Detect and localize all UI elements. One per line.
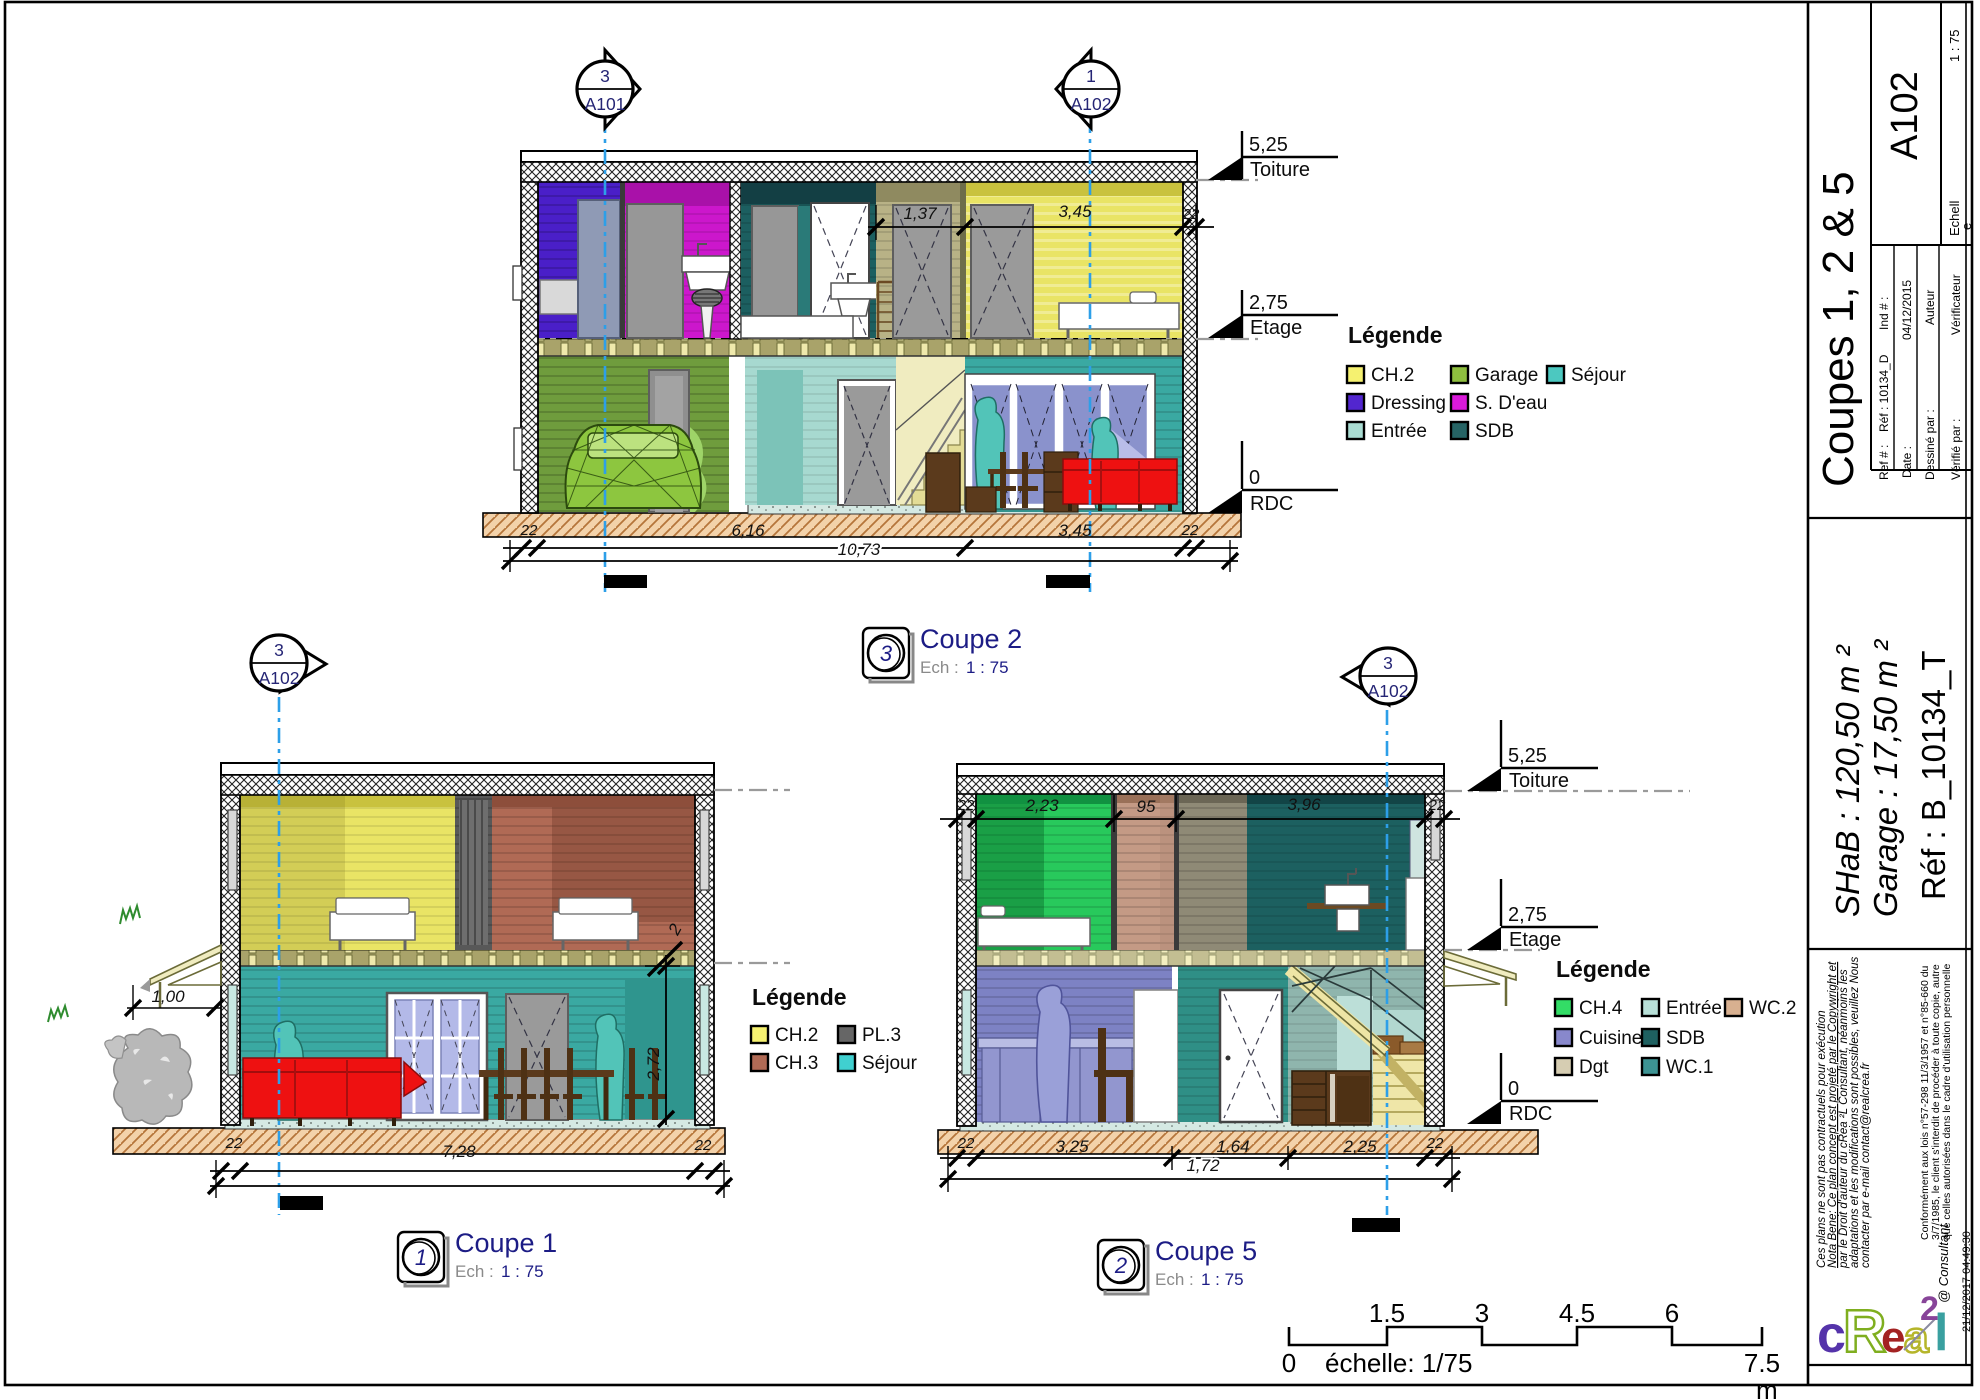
svg-text:PL.3: PL.3 (862, 1025, 901, 1046)
svg-text:6: 6 (1665, 1298, 1679, 1328)
svg-text:4.5: 4.5 (1559, 1298, 1595, 1328)
svg-text:l: l (1934, 1304, 1948, 1362)
svg-text:Date :: Date : (1900, 446, 1914, 478)
svg-text:Séjour: Séjour (1571, 365, 1627, 386)
svg-text:CH.3: CH.3 (775, 1053, 818, 1074)
svg-text:3,45: 3,45 (1058, 202, 1092, 221)
svg-text:1 : 75: 1 : 75 (1201, 1270, 1244, 1289)
svg-text:CH.4: CH.4 (1579, 998, 1623, 1019)
svg-text:3,45: 3,45 (1058, 521, 1092, 540)
svg-text:Ind # :: Ind # : (1877, 297, 1891, 330)
svg-text:22: 22 (1182, 206, 1200, 223)
svg-text:7.5: 7.5 (1744, 1348, 1780, 1378)
svg-text:Ech :: Ech : (920, 658, 959, 677)
svg-text:1,72: 1,72 (1186, 1156, 1220, 1175)
svg-text:1,00: 1,00 (151, 987, 185, 1006)
svg-text:3,96: 3,96 (1287, 795, 1321, 814)
svg-text:S. D'eau: S. D'eau (1475, 393, 1547, 414)
svg-text:0: 0 (1508, 1078, 1519, 1100)
svg-text:échelle: 1/75: échelle: 1/75 (1325, 1348, 1472, 1378)
svg-text:Ech :: Ech : (455, 1262, 494, 1281)
svg-text:c: c (1817, 1306, 1846, 1364)
svg-text:2,72: 2,72 (644, 1047, 663, 1082)
svg-text:Légende: Légende (752, 984, 847, 1010)
svg-text:04/12/2015: 04/12/2015 (1900, 280, 1914, 340)
svg-text:1.5: 1.5 (1369, 1298, 1405, 1328)
svg-text:22: 22 (1181, 522, 1199, 539)
svg-text:5,25: 5,25 (1508, 745, 1547, 767)
svg-text:CH.2: CH.2 (775, 1025, 818, 1046)
svg-text:A102: A102 (259, 668, 300, 688)
svg-text:Dgt: Dgt (1579, 1057, 1609, 1078)
svg-text:Coupe 1: Coupe 1 (455, 1228, 557, 1258)
svg-text:0: 0 (1282, 1348, 1296, 1378)
svg-text:2,75: 2,75 (1508, 904, 1547, 926)
svg-text:Coupe 5: Coupe 5 (1155, 1236, 1257, 1266)
svg-text:2,75: 2,75 (1249, 292, 1288, 314)
svg-text:m: m (1756, 1375, 1778, 1400)
svg-text:Etage: Etage (1509, 929, 1561, 951)
svg-text:RDC: RDC (1509, 1103, 1552, 1125)
svg-text:22: 22 (694, 1137, 712, 1154)
svg-text:0: 0 (1249, 467, 1260, 489)
svg-text:Réf : 10134_D: Réf : 10134_D (1877, 354, 1891, 432)
svg-text:3,25: 3,25 (1055, 1137, 1089, 1156)
svg-text:Légende: Légende (1348, 322, 1443, 348)
svg-text:22: 22 (957, 797, 975, 814)
svg-text:A101: A101 (585, 94, 626, 114)
svg-text:2,23: 2,23 (1024, 796, 1059, 815)
svg-text:Garage : 17,50 m ²: Garage : 17,50 m ² (1867, 639, 1904, 917)
svg-text:1 : 75: 1 : 75 (966, 658, 1009, 677)
svg-text:2: 2 (1114, 1253, 1127, 1278)
svg-text:Entrée: Entrée (1666, 998, 1722, 1019)
svg-text:SDB: SDB (1475, 421, 1514, 442)
svg-text:R: R (1843, 1298, 1886, 1365)
svg-text:1: 1 (1086, 66, 1096, 86)
svg-text:A102: A102 (1884, 71, 1926, 160)
svg-text:Cuisine: Cuisine (1579, 1028, 1642, 1049)
svg-text:A102: A102 (1071, 94, 1112, 114)
svg-text:3: 3 (600, 66, 610, 86)
svg-text:6,16: 6,16 (731, 521, 765, 540)
svg-text:que celles autorisées dans le: que celles autorisées dans le cadre d'ut… (1941, 963, 1953, 1240)
svg-text:7,28: 7,28 (442, 1142, 476, 1161)
svg-text:3: 3 (1383, 653, 1393, 673)
svg-text:Dressing: Dressing (1371, 393, 1446, 414)
svg-text:22: 22 (225, 1135, 243, 1152)
svg-text:Toiture: Toiture (1509, 770, 1569, 792)
svg-text:5,25: 5,25 (1249, 134, 1288, 156)
svg-text:Dessiné par :: Dessiné par : (1923, 409, 1937, 480)
svg-text:1 : 75: 1 : 75 (1947, 29, 1962, 62)
svg-text:1: 1 (415, 1245, 427, 1270)
svg-text:Vérificateur: Vérificateur (1949, 274, 1963, 335)
svg-text:95: 95 (1137, 797, 1156, 816)
svg-text:Toiture: Toiture (1250, 159, 1310, 181)
svg-text:Ech :: Ech : (1155, 1270, 1194, 1289)
svg-text:Ref # :: Ref # : (1877, 445, 1891, 480)
svg-text:Coupes 1, 2 & 5: Coupes 1, 2 & 5 (1814, 171, 1863, 487)
svg-text:SHaB : 120,50 m ²: SHaB : 120,50 m ² (1829, 645, 1866, 917)
svg-text:WC.1: WC.1 (1666, 1057, 1714, 1078)
svg-text:Coupe 2: Coupe 2 (920, 624, 1022, 654)
svg-text:RDC: RDC (1250, 493, 1293, 515)
svg-text:contacter par e-mail contact@r: contacter par e-mail contact@realcrea.fr (1860, 1061, 1872, 1268)
svg-text:2,25: 2,25 (1342, 1137, 1377, 1156)
svg-text:Vérifié par :: Vérifié par : (1949, 419, 1963, 480)
svg-text:3: 3 (274, 640, 284, 660)
svg-text:WC.2: WC.2 (1749, 998, 1797, 1019)
svg-text:1 : 75: 1 : 75 (501, 1262, 544, 1281)
svg-text:e: e (1959, 223, 1974, 230)
svg-text:3: 3 (1475, 1298, 1489, 1328)
svg-text:Etage: Etage (1250, 317, 1302, 339)
svg-text:22: 22 (520, 522, 538, 539)
svg-text:21/12/2017 04:49:30: 21/12/2017 04:49:30 (1961, 1231, 1973, 1332)
svg-text:CH.2: CH.2 (1371, 365, 1414, 386)
svg-text:Séjour: Séjour (862, 1053, 918, 1074)
svg-text:3: 3 (880, 641, 893, 666)
svg-text:22: 22 (957, 1135, 975, 1152)
svg-text:e: e (1881, 1313, 1905, 1362)
svg-text:Auteur: Auteur (1923, 290, 1937, 325)
svg-text:Entrée: Entrée (1371, 421, 1427, 442)
svg-text:Garage: Garage (1475, 365, 1538, 386)
svg-text:SDB: SDB (1666, 1028, 1705, 1049)
svg-text:Légende: Légende (1556, 956, 1651, 982)
svg-text:1,64: 1,64 (1216, 1137, 1249, 1156)
svg-text:Réf : B_10134_T: Réf : B_10134_T (1915, 651, 1952, 901)
svg-text:22: 22 (1426, 1135, 1444, 1152)
svg-text:1,37: 1,37 (903, 204, 937, 223)
svg-text:10,73: 10,73 (838, 540, 881, 559)
svg-text:A102: A102 (1368, 681, 1409, 701)
